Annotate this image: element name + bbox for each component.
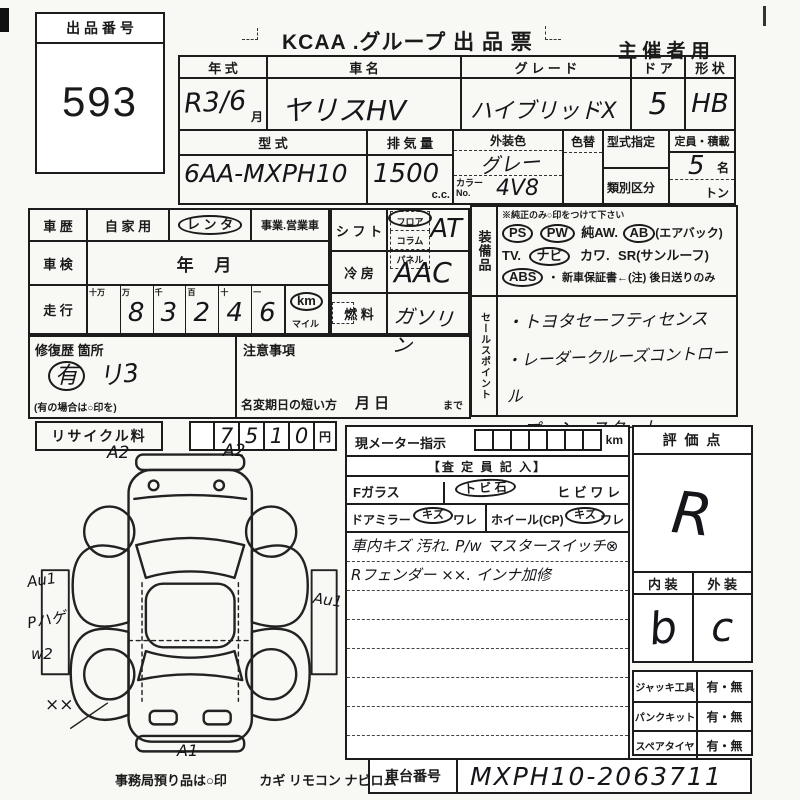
auction-number-value: 593 bbox=[37, 78, 163, 126]
type-designation-cell: 型式指定 bbox=[602, 129, 670, 169]
digit-1k: 3 bbox=[161, 298, 178, 328]
car-diagram: A2 A2 Au1 Pハゲ w2 ×× A1 Au1 bbox=[25, 443, 340, 761]
equipment-tv: TV. bbox=[502, 248, 521, 263]
auction-number-box: 出 品 番 号 593 bbox=[35, 12, 165, 174]
door-header: ド ア bbox=[630, 55, 686, 79]
name-value: ヤリスHV bbox=[282, 89, 406, 129]
ac-cell: AAC bbox=[386, 250, 470, 294]
grade-cell: ハイブリッドX bbox=[460, 77, 632, 131]
history-business: 事業.営業車 bbox=[250, 208, 330, 242]
sales-point-item: ・レーダークルーズコントロール bbox=[505, 335, 735, 415]
name-change-value: 月 日 bbox=[355, 392, 389, 413]
wheel-ware: ワレ bbox=[600, 511, 624, 528]
shift-label: シ フ ト bbox=[330, 208, 388, 252]
dash-mark-left bbox=[242, 28, 258, 40]
year-unit: 月 bbox=[251, 108, 263, 125]
name-change-suffix: まで bbox=[443, 397, 463, 412]
history-rental-cell: レ ン タ bbox=[168, 208, 252, 242]
repair-hint: (有の場合は○印を) bbox=[34, 399, 117, 414]
diagram-label-a2-right: A2 bbox=[223, 441, 245, 461]
capacity-value: 5 bbox=[688, 151, 705, 181]
equipment-note: ※純正のみ○印をつけて下さい bbox=[502, 208, 734, 221]
equipment-aw: 純AW. bbox=[581, 225, 618, 240]
auction-number-label: 出 品 番 号 bbox=[37, 14, 163, 44]
color-no-value: 4V8 bbox=[496, 176, 539, 201]
shift-floor-circle bbox=[388, 209, 432, 227]
shape-header: 形 状 bbox=[684, 55, 736, 79]
year-value: R3/6 bbox=[183, 85, 247, 119]
meter-cell bbox=[510, 429, 530, 451]
equipment-pw: PW bbox=[540, 224, 575, 243]
equipment-kawa: カワ. bbox=[580, 248, 610, 263]
shift-option-column-box: コラム bbox=[390, 231, 430, 250]
empty-note-row bbox=[347, 591, 628, 620]
equipment-label-strip: 装備品 bbox=[472, 207, 498, 295]
grade-header: グ レ ー ド bbox=[460, 55, 632, 79]
drivetrain-block: シ フ ト フロア コラム パネル AT 冷 房 AAC 燃 料 ガソリン bbox=[330, 208, 470, 335]
meter-row: 現メーター指示 km bbox=[347, 427, 628, 457]
exterior-value: c bbox=[711, 605, 733, 651]
diagram-label-a1: A1 bbox=[177, 741, 198, 760]
sales-points-box: セールスポイント ・トヨタセーフティセンス ・レーダークルーズコントロール ・プ… bbox=[470, 295, 738, 417]
spare-tire-label: スペアタイヤ bbox=[634, 732, 698, 758]
door-mirror-label: ドアミラー bbox=[351, 511, 411, 528]
history-private: 自 家 用 bbox=[86, 208, 170, 242]
interior-value-cell: b bbox=[634, 595, 694, 661]
jack-label: ジャッキ工具 bbox=[634, 672, 698, 701]
name-cell: ヤリスHV bbox=[266, 77, 462, 131]
exterior-header: 外 装 bbox=[694, 573, 752, 593]
history-rental: レ ン タ bbox=[178, 215, 242, 235]
shift-value: AT bbox=[430, 214, 462, 244]
history-block: 車 歴 自 家 用 レ ン タ 事業.営業車 車 検 年 月 走 行 十万 万8… bbox=[28, 208, 330, 335]
mileage-grid: 十万 万8 千3 百2 十4 一6 bbox=[86, 284, 286, 335]
digit-100: 2 bbox=[193, 298, 210, 328]
chassis-value: MXPH10-2063711 bbox=[470, 762, 723, 791]
scan-mark-right bbox=[763, 6, 766, 26]
name-header: 車 名 bbox=[266, 55, 462, 79]
year-header: 年 式 bbox=[178, 55, 268, 79]
spare-tire-value: 有・無 bbox=[698, 732, 751, 758]
equipment-ab: AB bbox=[623, 224, 656, 243]
wheel-label: ホイール(CP) bbox=[491, 511, 564, 528]
capacity-unit: 名 bbox=[717, 159, 729, 176]
hibiware-label: ヒ ビ ワ レ bbox=[557, 482, 620, 501]
evaluation-score-cell: R bbox=[634, 455, 751, 573]
interior-exterior-headers: 内 装 外 装 bbox=[634, 571, 751, 595]
assessor-header: 【査 定 員 記 入】 bbox=[347, 457, 628, 477]
color-cell: 外装色 グレー カラーNo. 4V8 bbox=[452, 129, 564, 205]
meter-cell bbox=[474, 429, 494, 451]
meter-cell bbox=[582, 429, 602, 451]
evaluation-box: 評 価 点 R 内 装 外 装 b c bbox=[632, 425, 753, 663]
equipment-label: 装備品 bbox=[475, 230, 494, 272]
door-cell: 5 bbox=[630, 77, 686, 131]
assessor-note: 車内キズ 汚れ. P/w マスタースイッチ⊗ bbox=[351, 537, 618, 555]
door-value: 5 bbox=[648, 87, 667, 122]
interior-value: b bbox=[645, 601, 680, 655]
load-row: トン bbox=[670, 179, 734, 203]
class-label: 類別区分 bbox=[604, 169, 668, 196]
puncture-kit-value: 有・無 bbox=[698, 703, 751, 730]
interior-header: 内 装 bbox=[634, 573, 694, 593]
assessor-note: Rフェンダー ××. インナ加修 bbox=[351, 566, 551, 584]
digit-header-100k: 十万 bbox=[89, 287, 105, 298]
meter-cell bbox=[564, 429, 584, 451]
auction-sheet: 出 品 番 号 593 KCAA .グループ 出 品 票 主 催 者 用 年 式… bbox=[0, 0, 800, 800]
puncture-kit-label: パンクキット bbox=[634, 703, 698, 730]
empty-note-row bbox=[347, 678, 628, 707]
inspection-label: 車 検 bbox=[28, 240, 88, 286]
digit-header-10k: 万 bbox=[122, 287, 130, 298]
mirror-ware: ワレ bbox=[453, 511, 477, 528]
fuel-value: ガソリン bbox=[391, 299, 470, 362]
equipment-navi: ナビ bbox=[529, 247, 569, 266]
color-change-cell: 色替 bbox=[562, 129, 604, 205]
shift-cell: フロア コラム パネル AT bbox=[386, 208, 470, 252]
repair-label: 修復歴 箇所 bbox=[35, 340, 104, 359]
footer-items: カギ リモコン ナビロム bbox=[259, 773, 396, 788]
displacement-value: 1500 bbox=[373, 159, 439, 189]
empty-note-row bbox=[347, 620, 628, 649]
equipment-ab-suffix: (エアバック) bbox=[655, 226, 723, 240]
digit-header-1k: 千 bbox=[155, 287, 163, 298]
year-cell: R3/6 月 bbox=[178, 77, 268, 131]
equipment-ps: PS bbox=[502, 224, 533, 243]
sales-point-item: ・トヨタセーフティセンス bbox=[506, 301, 735, 341]
repair-note: リ3 bbox=[96, 353, 140, 393]
grade-value: ハイブリッドX bbox=[470, 93, 617, 125]
displacement-cell: 排 気 量 1500 c.c. bbox=[366, 129, 454, 205]
mirror-kizu: キズ bbox=[413, 507, 453, 524]
equipment-abs: ABS bbox=[502, 268, 543, 287]
displacement-header: 排 気 量 bbox=[368, 131, 452, 156]
fuel-cell: ガソリン bbox=[386, 292, 470, 335]
name-change-label: 名変期日の短い方 bbox=[241, 396, 337, 413]
fuel-label: 燃 料 bbox=[330, 292, 388, 335]
color-no-label: カラーNo. bbox=[456, 179, 486, 199]
equipment-box: 装備品 ※純正のみ○印をつけて下さい PS PW 純AW. AB(エアバック) … bbox=[470, 205, 738, 297]
mileage-unit-cell: km マイル bbox=[284, 284, 330, 335]
repair-box: 修復歴 箇所 有 リ3 (有の場合は○印を) bbox=[28, 335, 237, 419]
ac-label: 冷 房 bbox=[330, 250, 388, 294]
mirror-wheel-row: ドアミラー キズ ワレ ホイール(CP) キズ ワレ bbox=[347, 505, 628, 533]
evaluation-score: R bbox=[669, 478, 716, 550]
caution-label: 注意事項 bbox=[243, 340, 295, 359]
chassis-row: 車台番号 MXPH10-2063711 bbox=[368, 758, 752, 794]
shift-option-floor-box: フロア bbox=[390, 211, 430, 231]
digit-header-100: 百 bbox=[187, 287, 195, 298]
footer-note: 事務局預り品は○印 bbox=[115, 773, 227, 788]
shape-value: HB bbox=[691, 89, 728, 119]
f-glass-label: Fガラス bbox=[353, 482, 445, 505]
capacity-header: 定員・積載 bbox=[670, 131, 734, 153]
model-header: 型 式 bbox=[180, 131, 366, 156]
diagram-label-au1-right: Au1 bbox=[312, 589, 344, 611]
meter-cell bbox=[528, 429, 548, 451]
meter-cells bbox=[476, 429, 602, 451]
displacement-unit: c.c. bbox=[432, 189, 450, 201]
sales-points-label: セールスポイント bbox=[477, 312, 492, 400]
diagram-label-a2-left: A2 bbox=[107, 443, 129, 463]
assessor-notes: 車内キズ 汚れ. P/w マスタースイッチ⊗ Rフェンダー ××. インナ加修 bbox=[347, 533, 628, 758]
meter-unit: km bbox=[606, 433, 623, 447]
meter-cell bbox=[492, 429, 512, 451]
evaluation-header: 評 価 点 bbox=[634, 427, 751, 455]
tobi-ishi-label: ト ビ 石 bbox=[455, 477, 517, 499]
jack-value: 有・無 bbox=[698, 672, 751, 701]
exterior-value-cell: c bbox=[694, 595, 752, 661]
load-unit: トン bbox=[705, 184, 729, 201]
empty-note-row bbox=[347, 649, 628, 678]
inspection-value: 年 月 bbox=[86, 240, 330, 286]
capacity-cell: 定員・積載 5 名 トン bbox=[668, 129, 736, 205]
model-value: 6AA-MXPH10 bbox=[184, 159, 348, 188]
meter-label: 現メーター指示 bbox=[355, 433, 446, 452]
accessories-box: ジャッキ工具 有・無 パンクキット 有・無 スペアタイヤ 有・無 bbox=[632, 670, 753, 756]
mileage-unit-km: km bbox=[290, 292, 323, 311]
assessor-block: 現メーター指示 km 【査 定 員 記 入】 Fガラス ト ビ 石 ヒ ビ ワ … bbox=[345, 425, 630, 760]
vehicle-table: 年 式 車 名 グ レ ー ド ド ア 形 状 R3/6 月 ヤリスHV ハイブ… bbox=[178, 55, 736, 205]
mileage-unit-mile: マイル bbox=[292, 317, 319, 330]
class-cell: 類別区分 bbox=[602, 167, 670, 205]
type-designation-label: 型式指定 bbox=[604, 131, 668, 152]
mirror-wheel-divider bbox=[485, 505, 487, 531]
sales-points-label-strip: セールスポイント bbox=[472, 297, 498, 415]
color-no-row: カラーNo. 4V8 bbox=[454, 175, 562, 203]
diagram-label-xx: ×× bbox=[45, 695, 74, 715]
shift-option-column: コラム bbox=[397, 236, 424, 246]
equipment-sr: SR(サンルーフ) bbox=[618, 248, 709, 263]
digit-1: 6 bbox=[259, 298, 276, 328]
history-label: 車 歴 bbox=[28, 208, 88, 242]
interior-exterior-values: b c bbox=[634, 595, 751, 661]
sheet-title: KCAA .グループ 出 品 票 bbox=[282, 26, 533, 56]
mileage-label: 走 行 bbox=[28, 284, 88, 335]
digit-header-1: 一 bbox=[253, 287, 261, 298]
equipment-warranty: ・ 新車保証書←(注) 後日送りのみ bbox=[548, 272, 715, 284]
empty-note-row bbox=[347, 707, 628, 736]
color-change-label: 色替 bbox=[564, 131, 602, 153]
repair-mark: 有 bbox=[48, 361, 85, 391]
diagram-label-w2: w2 bbox=[31, 645, 53, 663]
shape-cell: HB bbox=[684, 77, 736, 131]
footer-note-row: 事務局預り品は○印 カギ リモコン ナビロム bbox=[115, 770, 397, 790]
meter-cell bbox=[546, 429, 566, 451]
dash-mark-right bbox=[545, 26, 561, 40]
digit-10k: 8 bbox=[128, 298, 145, 328]
equipment-content: ※純正のみ○印をつけて下さい PS PW 純AW. AB(エアバック) TV. … bbox=[502, 208, 734, 287]
glass-row: Fガラス ト ビ 石 ヒ ビ ワ レ bbox=[347, 477, 628, 505]
scan-mark-left bbox=[0, 8, 9, 32]
ac-value: AAC bbox=[394, 256, 452, 289]
digit-10: 4 bbox=[226, 298, 243, 328]
digit-header-10: 十 bbox=[220, 287, 228, 298]
model-cell: 型 式 6AA-MXPH10 bbox=[178, 129, 368, 205]
